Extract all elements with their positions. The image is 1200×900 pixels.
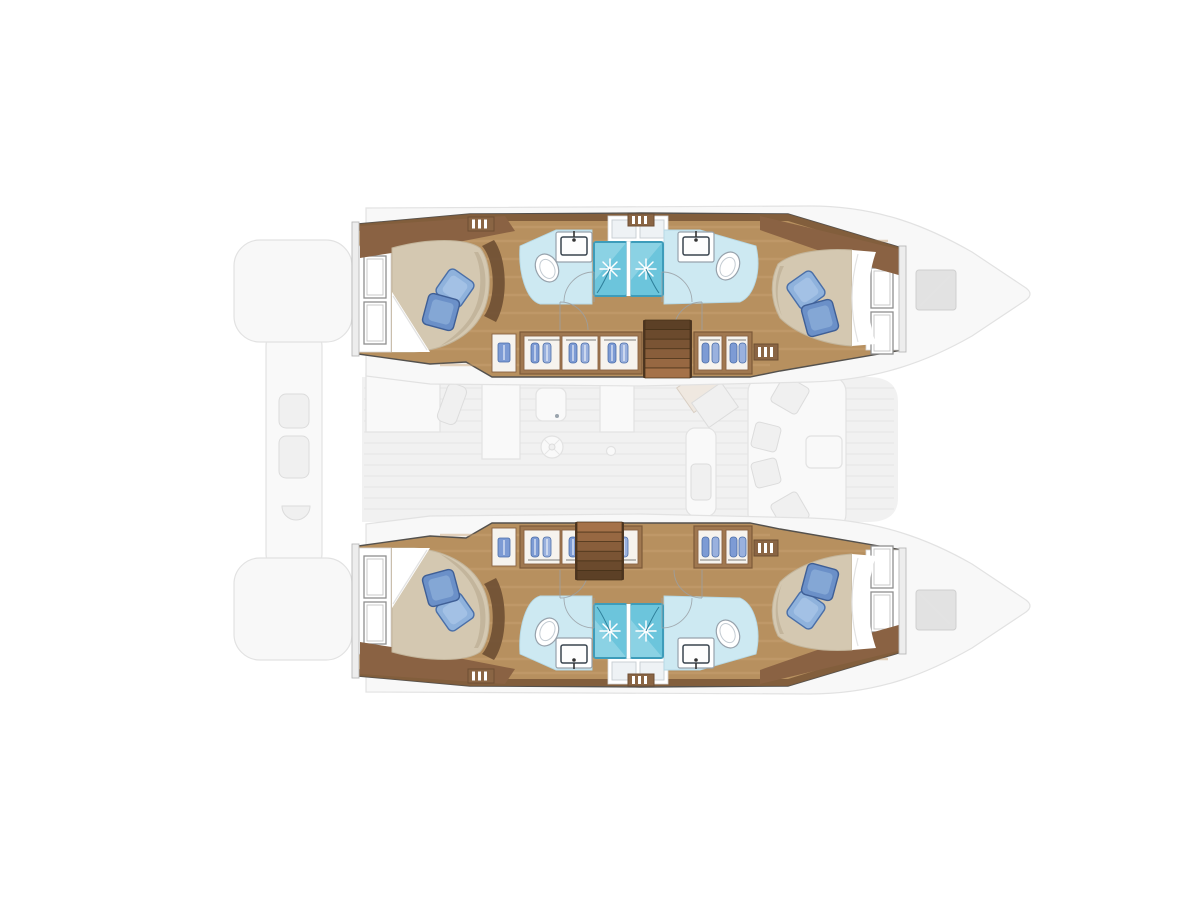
air-vent bbox=[754, 344, 778, 360]
galley-sink bbox=[536, 388, 566, 421]
sink-right bbox=[678, 231, 714, 262]
wardrobe-cell bbox=[562, 336, 598, 370]
galley-cabinet bbox=[600, 382, 634, 432]
lounge-cushion bbox=[750, 457, 782, 489]
starboard-stairs bbox=[575, 522, 624, 580]
sink-faucet-dot bbox=[555, 414, 559, 418]
lounge-cushion bbox=[750, 421, 782, 453]
wardrobe-cell bbox=[524, 336, 560, 370]
starboard-hull bbox=[234, 514, 1030, 694]
yacht-layout-canvas bbox=[0, 0, 1200, 900]
galley-counter bbox=[482, 377, 520, 459]
catamaran-floor-plan bbox=[0, 0, 1200, 900]
port-stairs bbox=[643, 320, 692, 378]
aft-corner-post bbox=[352, 222, 359, 356]
column-panel bbox=[691, 464, 711, 500]
stall-divider bbox=[627, 242, 631, 296]
air-vent bbox=[468, 217, 494, 231]
wardrobe-cell bbox=[600, 336, 638, 370]
sink-left bbox=[556, 231, 592, 262]
port-hull bbox=[234, 206, 1030, 386]
stern-platform bbox=[234, 240, 352, 342]
lounge-table bbox=[806, 436, 842, 468]
air-vent bbox=[628, 214, 654, 226]
bow-corner-post bbox=[899, 246, 906, 352]
cockpit-seat bbox=[279, 436, 309, 478]
mast-foot bbox=[607, 447, 616, 456]
helm-seat bbox=[279, 394, 309, 428]
burner-center bbox=[549, 444, 555, 450]
